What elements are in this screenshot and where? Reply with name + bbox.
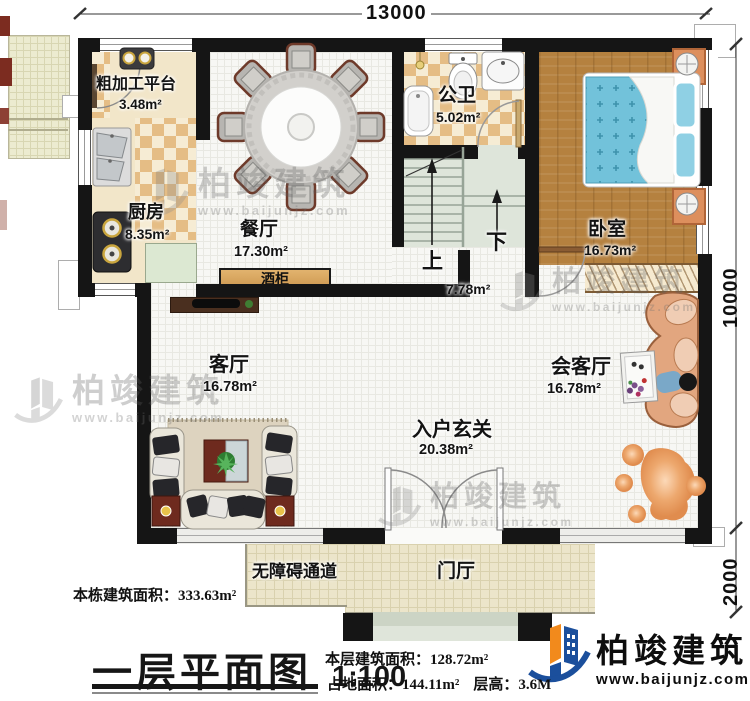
porch-pillar [343,613,373,641]
room-label-ramp: 无障碍通道 [252,562,337,582]
window [78,130,92,185]
wall [502,528,560,544]
wall [323,528,385,544]
stair-up-label: 上 [422,250,443,274]
porch-step [373,612,518,627]
window [560,528,685,544]
wall [518,145,525,159]
wall [685,528,712,544]
brand-name: 柏竣建筑 [596,634,749,667]
window-sill [58,260,80,310]
room-area-living: 16.78m² [203,379,257,396]
room-area-bedroom: 16.73m² [584,242,636,258]
room-label-reception: 会客厅 [551,356,611,379]
wall [196,52,210,140]
room-area-reception: 16.78m² [547,381,601,398]
stair-down-label: 下 [486,231,507,255]
wall [698,254,712,544]
porch-pillar [518,613,552,641]
brand-website: www.baijunjz.com [596,671,749,688]
wall [78,185,92,283]
wall [196,284,470,297]
floor-plan-page: 酒柜 [0,0,750,701]
wall [78,52,92,130]
dim-porch: 2000 [716,548,747,606]
room-label-bedroom: 卧室 [588,219,626,241]
wall [78,283,95,297]
edge-stamp-fragment [0,58,12,86]
kitchen-appliance [145,243,197,283]
nightstand [672,188,706,225]
room-label-bath: 公卫 [438,85,476,107]
note-floor-area: 本层建筑面积：128.72m² [325,648,488,669]
edge-stamp-fragment [0,108,9,124]
note-land-row: 占地面积：144.11m² 层高：3.6M [327,673,551,694]
porch-step [373,626,518,641]
patio-area [8,35,70,159]
plant-on-stand [245,300,253,308]
edge-stamp-fragment [0,200,7,230]
room-area-bath: 5.02m² [436,109,480,125]
room-label-foyer: 门厅 [437,561,475,583]
room-label-entry: 入户玄关 [412,419,492,442]
wall [137,283,151,544]
title-underline [92,684,318,689]
room-label-living: 客厅 [209,354,249,377]
entry-door-opening [385,528,502,544]
window [177,528,323,544]
bedroom-railing-screen [585,263,698,293]
note-total-area: 本栋建筑面积：333.63m² [73,584,236,605]
note-floor-height: 层高：3.6M [473,673,551,694]
room-label-dining: 餐厅 [240,219,278,241]
room-label-kitchen: 厨房 [128,202,164,223]
dim-top: 13000 [362,2,431,25]
room-area-kitchen: 8.35m² [125,226,169,242]
patio-step-line [8,129,68,131]
note-land-area: 占地面积：144.11m² [327,673,459,694]
stair-area: 7.78m² [446,281,490,297]
wall [525,250,539,297]
window [100,38,192,52]
wall [698,108,712,186]
plan-title: 一层平面图 [92,640,312,698]
tv [192,299,240,308]
wall [78,38,100,52]
room-label-rough-platform: 粗加工平台 [96,76,176,94]
wall [525,38,539,250]
room-area-entry: 20.38m² [419,442,473,459]
nightstand [672,48,706,85]
dim-right: 10000 [716,232,747,328]
brand-block: 柏竣建筑 www.baijunjz.com [596,634,749,688]
edge-stamp-fragment [0,16,10,36]
window [425,38,502,52]
dining-floor [196,52,392,284]
window [95,283,135,297]
wall [192,38,425,52]
title-underline-thin [92,692,318,694]
room-area-rough-platform: 3.48m² [119,97,162,113]
room-area-dining: 17.30m² [234,244,288,261]
patio-step-line [8,118,68,120]
wall [137,528,177,544]
wall [392,145,478,159]
